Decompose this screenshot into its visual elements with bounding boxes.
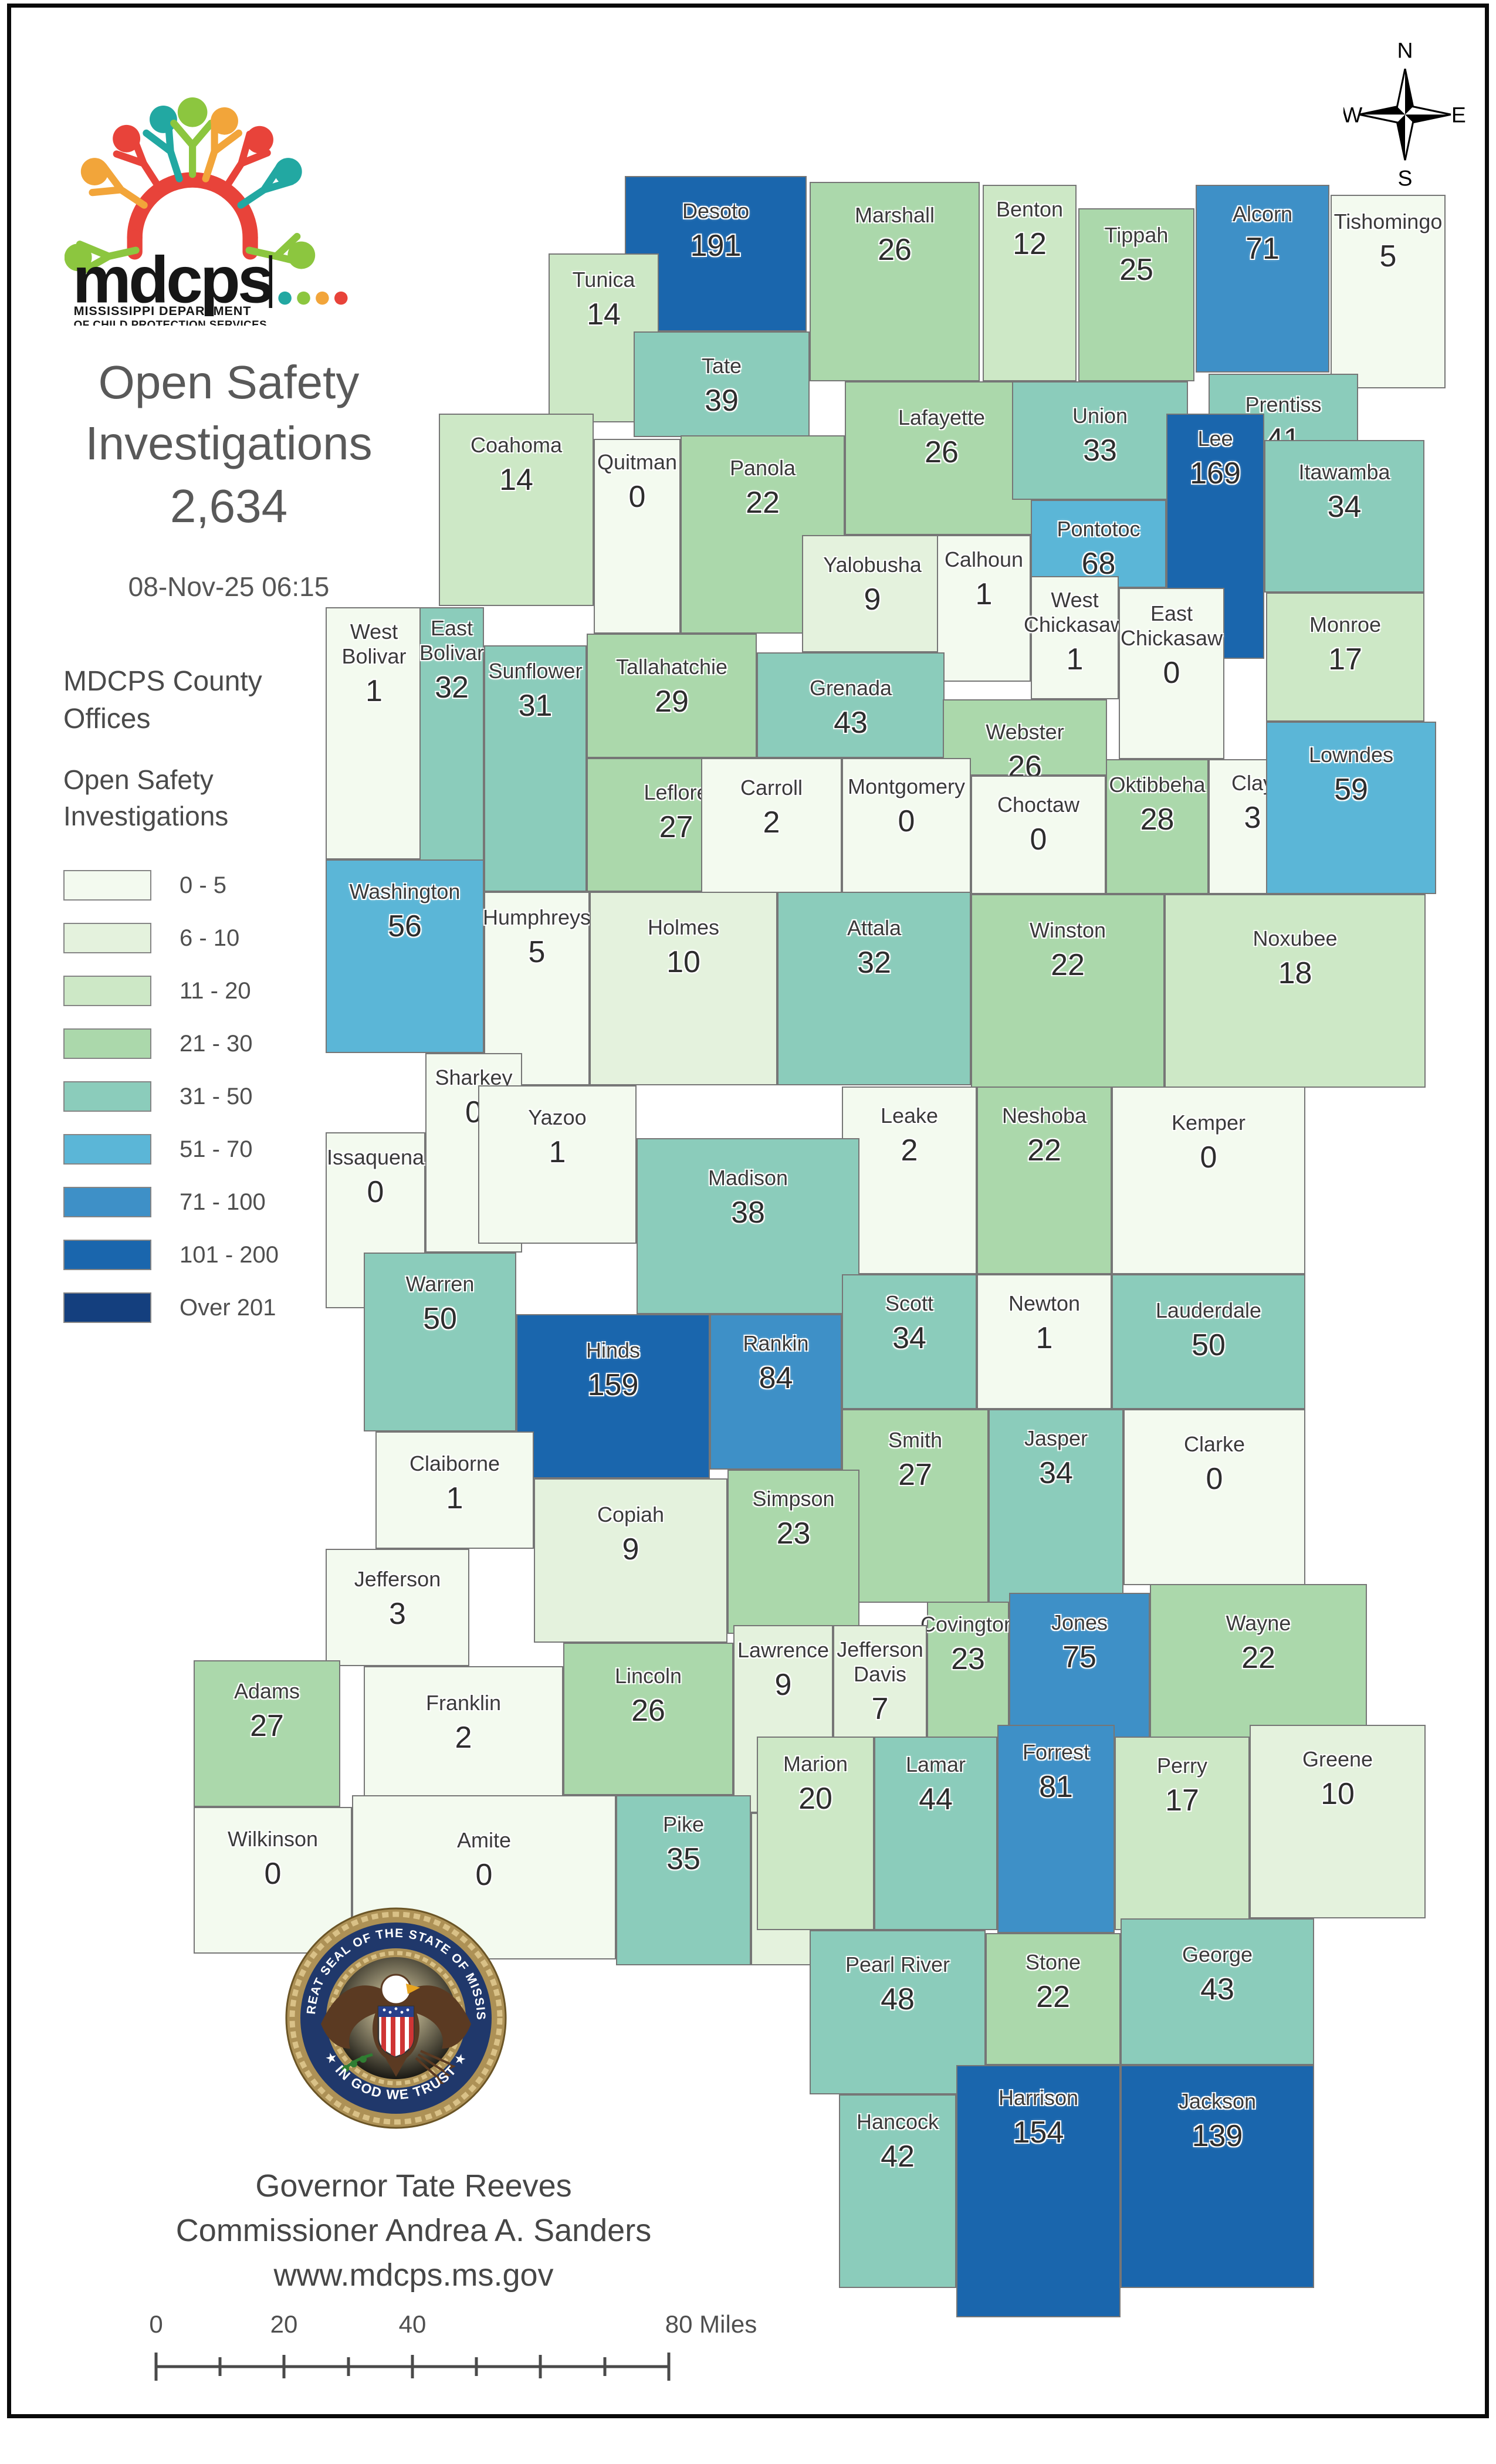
county-value-label: 34: [1328, 489, 1362, 524]
county-value-label: 26: [925, 435, 959, 470]
county-franklin: Franklin2: [364, 1666, 563, 1801]
county-name-label: Greene: [1302, 1747, 1373, 1772]
county-value-label: 56: [388, 909, 422, 944]
county-lauderdale: Lauderdale50: [1112, 1274, 1305, 1409]
county-value-label: 75: [1062, 1640, 1096, 1675]
county-name-label: Simpson: [752, 1487, 834, 1511]
county-name-label: Forrest: [1023, 1740, 1089, 1765]
county-name-label: Grenada: [810, 676, 892, 700]
county-value-label: 84: [759, 1360, 793, 1396]
county-value-label: 43: [1200, 1972, 1234, 2007]
county-name-label: Wayne: [1226, 1611, 1291, 1636]
county-value-label: 154: [1013, 2115, 1064, 2150]
county-value-label: 33: [1083, 433, 1117, 468]
county-value-label: 0: [898, 804, 915, 839]
county-name-label: Kemper: [1172, 1111, 1245, 1135]
county-name-label: Lafayette: [898, 405, 985, 430]
county-name-label: Marion: [783, 1752, 848, 1776]
county-value-label: 22: [1027, 1133, 1061, 1168]
county-name-label: Humphreys: [483, 905, 591, 930]
county-madison: Madison38: [637, 1138, 859, 1314]
scale-label-20: 20: [270, 2310, 298, 2338]
county-name-label: Lamar: [906, 1752, 966, 1777]
county-value-label: 50: [1192, 1328, 1226, 1363]
county-rankin: Rankin84: [710, 1314, 842, 1470]
county-value-label: 22: [1036, 1979, 1070, 2015]
county-value-label: 32: [857, 945, 891, 980]
county-tippah: Tippah25: [1078, 208, 1194, 381]
county-tate: Tate39: [634, 331, 810, 437]
county-value-label: 31: [519, 688, 553, 723]
county-name-label: Madison: [708, 1166, 788, 1190]
county-value-label: 0: [1200, 1140, 1217, 1175]
county-value-label: 26: [878, 232, 912, 268]
county-lincoln: Lincoln26: [563, 1643, 733, 1795]
county-simpson: Simpson23: [727, 1470, 859, 1634]
county-value-label: 50: [423, 1301, 457, 1336]
county-name-label: Lauderdale: [1156, 1298, 1261, 1323]
county-name-label: Claiborne: [409, 1451, 500, 1476]
county-east-chickasaw: East Chickasaw0: [1119, 588, 1224, 759]
county-tallahatchie: Tallahatchie29: [587, 634, 757, 758]
county-union: Union33: [1012, 381, 1188, 500]
county-name-label: Tishomingo: [1334, 209, 1443, 234]
county-value-label: 3: [389, 1596, 406, 1632]
county-value-label: 1: [1036, 1321, 1053, 1356]
county-name-label: Carroll: [740, 776, 803, 800]
county-value-label: 26: [631, 1693, 665, 1728]
county-name-label: Coahoma: [471, 433, 562, 458]
county-claiborne: Claiborne1: [375, 1431, 534, 1549]
county-yazoo: Yazoo1: [478, 1085, 637, 1244]
county-name-label: Quitman: [597, 450, 677, 475]
county-lowndes: Lowndes59: [1266, 722, 1436, 894]
county-value-label: 0: [476, 1857, 493, 1893]
county-name-label: Issaquena: [327, 1145, 424, 1170]
county-value-label: 18: [1278, 956, 1312, 991]
county-value-label: 10: [666, 945, 700, 980]
county-clarke: Clarke0: [1123, 1409, 1305, 1585]
county-name-label: Panola: [730, 456, 796, 480]
county-value-label: 0: [1163, 655, 1180, 691]
county-sunflower: Sunflower31: [484, 645, 587, 892]
county-leake: Leake2: [842, 1087, 977, 1274]
county-name-label: Leflore: [644, 780, 708, 805]
county-value-label: 28: [1140, 802, 1175, 837]
county-name-label: Monroe: [1309, 612, 1381, 637]
county-value-label: 1: [365, 673, 383, 709]
county-value-label: 23: [951, 1641, 985, 1677]
county-name-label: Marshall: [855, 203, 935, 228]
county-name-label: Newton: [1008, 1291, 1080, 1316]
county-map: Desoto191Marshall26Benton12Tippah25Alcor…: [0, 0, 1496, 2464]
county-value-label: 59: [1334, 772, 1368, 807]
county-value-label: 10: [1321, 1776, 1355, 1812]
county-name-label: Wilkinson: [228, 1827, 318, 1852]
county-value-label: 34: [892, 1321, 926, 1356]
county-name-label: West Bolivar: [327, 620, 421, 669]
county-value-label: 35: [666, 1842, 700, 1877]
county-copiah: Copiah9: [534, 1478, 727, 1643]
county-greene: Greene10: [1250, 1725, 1426, 1918]
county-value-label: 81: [1039, 1769, 1073, 1805]
county-name-label: Jasper: [1024, 1426, 1088, 1451]
county-value-label: 32: [435, 670, 469, 705]
county-name-label: Oktibbeha: [1109, 773, 1205, 797]
county-value-label: 22: [746, 485, 780, 520]
county-calhoun: Calhoun1: [937, 535, 1031, 682]
county-value-label: 29: [655, 684, 689, 719]
county-value-label: 22: [1241, 1640, 1275, 1676]
county-quitman: Quitman0: [594, 439, 681, 634]
scale-label-0: 0: [149, 2310, 163, 2338]
county-pike: Pike35: [616, 1795, 751, 1965]
county-name-label: Winston: [1030, 918, 1106, 943]
county-name-label: Jones: [1051, 1610, 1108, 1635]
website-line: www.mdcps.ms.gov: [106, 2253, 722, 2297]
county-value-label: 1: [446, 1481, 463, 1516]
county-name-label: Copiah: [597, 1502, 664, 1527]
county-name-label: Noxubee: [1253, 926, 1337, 951]
county-name-label: Jackson: [1179, 2089, 1256, 2114]
county-value-label: 23: [777, 1516, 811, 1551]
county-value-label: 39: [705, 383, 739, 418]
county-jasper: Jasper34: [989, 1409, 1123, 1603]
county-name-label: George: [1182, 1942, 1253, 1967]
county-marshall: Marshall26: [810, 182, 980, 381]
county-perry: Perry17: [1115, 1737, 1250, 1930]
county-name-label: Rankin: [743, 1331, 808, 1356]
county-value-label: 9: [864, 582, 881, 617]
county-name-label: Webster: [986, 720, 1064, 744]
county-name-label: Hancock: [857, 2110, 939, 2134]
county-name-label: Tunica: [573, 268, 635, 292]
county-benton: Benton12: [983, 185, 1077, 381]
county-pontotoc: Pontotoc68: [1031, 500, 1166, 588]
county-value-label: 34: [1039, 1456, 1073, 1491]
county-name-label: Tallahatchie: [616, 655, 727, 679]
county-tishomingo: Tishomingo5: [1331, 195, 1446, 388]
county-name-label: Montgomery: [848, 774, 965, 799]
footer: Governor Tate Reeves Commissioner Andrea…: [106, 2164, 722, 2297]
county-value-label: 20: [798, 1781, 832, 1816]
county-jefferson: Jefferson3: [326, 1549, 469, 1666]
mississippi-state-seal: THE GREAT SEAL OF THE STATE OF MISSISSIP…: [285, 1907, 507, 2130]
county-kemper: Kemper0: [1112, 1087, 1305, 1274]
county-forrest: Forrest81: [997, 1725, 1115, 1933]
county-name-label: Leake: [881, 1104, 938, 1128]
county-name-label: Scott: [885, 1291, 933, 1316]
county-name-label: Jefferson: [354, 1567, 441, 1592]
county-choctaw: Choctaw0: [971, 776, 1106, 894]
county-name-label: Lawrence: [737, 1638, 829, 1663]
county-value-label: 7: [872, 1691, 889, 1727]
county-value-label: 43: [834, 705, 868, 740]
county-name-label: Tippah: [1105, 223, 1169, 248]
county-washington: Washington56: [326, 859, 484, 1053]
county-george: George43: [1121, 1918, 1314, 2065]
county-value-label: 191: [691, 228, 742, 263]
county-value-label: 0: [1206, 1461, 1223, 1497]
county-noxubee: Noxubee18: [1165, 894, 1426, 1088]
county-value-label: 27: [250, 1708, 284, 1744]
county-name-label: Amite: [457, 1828, 511, 1853]
scale-bar: [117, 2347, 763, 2399]
county-name-label: Lee: [1197, 427, 1233, 451]
scale-label-80-miles: 80 Miles: [665, 2310, 757, 2338]
county-value-label: 38: [731, 1195, 765, 1230]
county-value-label: 2: [901, 1133, 918, 1168]
county-name-label: Itawamba: [1298, 460, 1390, 485]
county-west-bolivar: West Bolivar1: [326, 607, 422, 859]
county-name-label: Alcorn: [1233, 202, 1292, 226]
county-value-label: 42: [881, 2139, 915, 2174]
county-value-label: 27: [898, 1457, 932, 1492]
county-value-label: 17: [1165, 1783, 1199, 1818]
county-newton: Newton1: [977, 1274, 1112, 1409]
county-name-label: Perry: [1157, 1754, 1207, 1778]
county-value-label: 1: [1067, 642, 1084, 677]
county-lafayette: Lafayette26: [845, 381, 1038, 535]
county-adams: Adams27: [194, 1660, 340, 1807]
county-harrison: Harrison154: [956, 2065, 1121, 2317]
county-winston: Winston22: [971, 894, 1165, 1088]
county-monroe: Monroe17: [1266, 593, 1424, 722]
county-name-label: Pontotoc: [1057, 517, 1140, 541]
county-montgomery: Montgomery0: [842, 758, 971, 893]
county-value-label: 48: [881, 1982, 915, 2017]
county-name-label: Benton: [996, 197, 1063, 222]
county-carroll: Carroll2: [701, 758, 842, 893]
county-attala: Attala32: [777, 892, 971, 1085]
county-name-label: Union: [1072, 404, 1128, 428]
county-name-label: Neshoba: [1002, 1104, 1087, 1128]
county-name-label: Choctaw: [997, 793, 1079, 817]
county-value-label: 0: [265, 1856, 282, 1891]
county-name-label: Clarke: [1184, 1432, 1245, 1457]
county-name-label: Yazoo: [528, 1105, 586, 1130]
county-value-label: 14: [587, 297, 621, 332]
county-name-label: Smith: [888, 1428, 942, 1453]
county-hinds: Hinds159: [516, 1314, 710, 1478]
county-value-label: 14: [499, 462, 533, 497]
county-name-label: Yalobusha: [823, 553, 921, 577]
county-jackson: Jackson139: [1121, 2065, 1314, 2288]
county-hancock: Hancock42: [839, 2094, 956, 2288]
county-value-label: 0: [367, 1175, 384, 1210]
county-name-label: Franklin: [426, 1691, 501, 1715]
governor-line: Governor Tate Reeves: [106, 2164, 722, 2208]
county-grenada: Grenada43: [757, 652, 945, 758]
county-value-label: 1: [976, 577, 993, 612]
county-neshoba: Neshoba22: [977, 1087, 1112, 1274]
county-name-label: Hinds: [586, 1338, 640, 1363]
county-name-label: Tate: [702, 354, 742, 378]
county-holmes: Holmes10: [590, 892, 777, 1085]
county-name-label: Jefferson Davis: [834, 1637, 926, 1687]
county-value-label: 2: [763, 805, 780, 840]
county-oktibbeha: Oktibbeha28: [1106, 759, 1209, 894]
county-marion: Marion20: [757, 1737, 874, 1930]
county-value-label: 0: [629, 479, 646, 515]
county-scott: Scott34: [842, 1274, 977, 1409]
county-value-label: 139: [1192, 2118, 1243, 2154]
county-name-label: Sunflower: [488, 659, 582, 683]
county-name-label: Harrison: [999, 2086, 1078, 2110]
county-name-label: East Chickasaw: [1120, 601, 1223, 651]
county-name-label: Adams: [234, 1679, 300, 1704]
county-value-label: 9: [775, 1667, 792, 1703]
county-value-label: 2: [455, 1720, 472, 1755]
county-name-label: Calhoun: [945, 547, 1023, 572]
county-lamar: Lamar44: [874, 1737, 997, 1930]
county-name-label: Attala: [847, 916, 901, 940]
county-name-label: Desoto: [682, 199, 749, 224]
county-value-label: 5: [529, 935, 546, 970]
county-value-label: 12: [1013, 226, 1047, 262]
county-east-bolivar: East Bolivar32: [419, 607, 484, 868]
page: mdcps MISSISSIPPI DEPARTMENT OF CHILD PR…: [0, 0, 1496, 2464]
county-name-label: Lowndes: [1309, 743, 1393, 767]
county-value-label: 71: [1245, 231, 1280, 266]
county-name-label: Stone: [1025, 1950, 1081, 1975]
county-name-label: Washington: [350, 879, 461, 904]
county-name-label: Lincoln: [615, 1664, 682, 1688]
county-name-label: Covington: [920, 1612, 1016, 1637]
county-stone: Stone22: [986, 1933, 1121, 2065]
county-name-label: West Chickasaw: [1024, 588, 1126, 637]
county-itawamba: Itawamba34: [1264, 440, 1424, 593]
county-alcorn: Alcorn71: [1196, 185, 1329, 373]
county-value-label: 22: [1051, 947, 1085, 983]
scale-label-40: 40: [399, 2310, 427, 2338]
county-yalobusha: Yalobusha9: [802, 535, 943, 652]
county-value-label: 169: [1190, 456, 1241, 491]
county-value-label: 1: [549, 1135, 566, 1170]
county-name-label: Pike: [663, 1812, 704, 1837]
county-value-label: 159: [588, 1368, 639, 1403]
county-name-label: East Bolivar: [419, 616, 484, 665]
county-value-label: 27: [659, 810, 693, 845]
county-west-chickasaw: West Chickasaw1: [1031, 576, 1119, 699]
county-value-label: 9: [622, 1532, 639, 1567]
county-coahoma: Coahoma14: [439, 414, 594, 606]
county-name-label: Holmes: [648, 915, 719, 940]
county-name-label: Warren: [406, 1272, 475, 1297]
county-value-label: 5: [1380, 239, 1397, 274]
county-value-label: 44: [919, 1782, 953, 1817]
commissioner-line: Commissioner Andrea A. Sanders: [106, 2208, 722, 2253]
county-name-label: Pearl River: [845, 1952, 950, 1977]
county-value-label: 25: [1119, 252, 1153, 287]
county-value-label: 3: [1244, 800, 1261, 835]
county-value-label: 0: [1030, 822, 1047, 857]
county-smith: Smith27: [842, 1409, 989, 1603]
county-value-label: 17: [1328, 642, 1362, 677]
county-warren: Warren50: [364, 1253, 516, 1431]
